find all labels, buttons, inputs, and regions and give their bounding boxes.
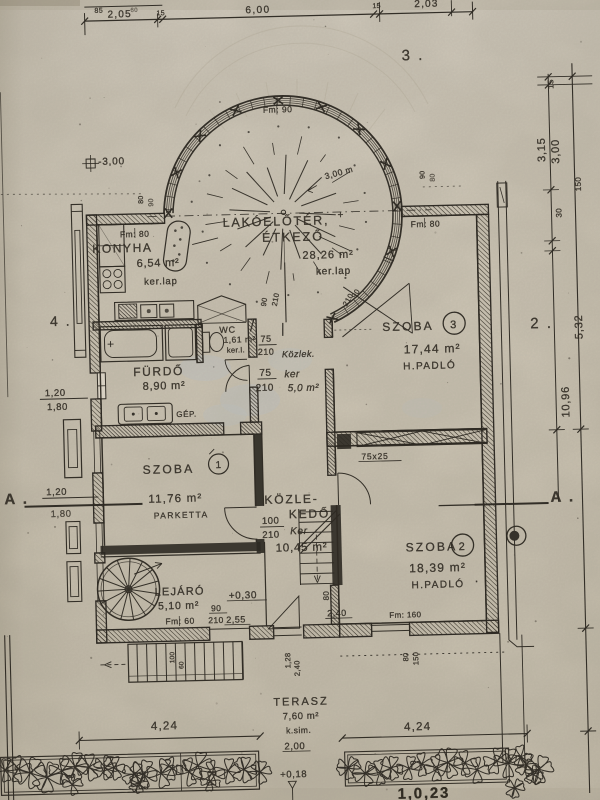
svg-text:-3,00: -3,00 — [98, 156, 125, 168]
svg-text:Fm: 80: Fm: 80 — [411, 219, 441, 230]
svg-text:1,61 m²: 1,61 m² — [223, 334, 256, 345]
svg-text:10,96: 10,96 — [560, 386, 573, 418]
svg-text:FÜRDŐ: FÜRDŐ — [133, 363, 184, 379]
svg-text:Fm: 90: Fm: 90 — [263, 104, 293, 115]
svg-text:2,03: 2,03 — [414, 0, 439, 10]
svg-text:Fm: 160: Fm: 160 — [389, 610, 422, 620]
svg-text:H.PADLÓ: H.PADLÓ — [403, 358, 456, 372]
svg-text:85: 85 — [94, 8, 103, 15]
svg-text:11,76 m²: 11,76 m² — [148, 492, 202, 505]
svg-text:H.PADLÓ: H.PADLÓ — [411, 577, 464, 591]
svg-text:PARKETTA: PARKETTA — [154, 509, 209, 520]
svg-text:1,20: 1,20 — [46, 487, 67, 499]
svg-text:+0,18: +0,18 — [280, 769, 307, 781]
svg-text:210: 210 — [256, 383, 274, 394]
svg-text:2,55: 2,55 — [226, 614, 246, 624]
svg-text:5,10 m²: 5,10 m² — [158, 600, 199, 613]
svg-text:150: 150 — [574, 177, 583, 192]
svg-text:6,00: 6,00 — [245, 5, 270, 17]
svg-text:80: 80 — [401, 652, 410, 661]
svg-text:15: 15 — [546, 79, 555, 89]
svg-text:·: · — [474, 574, 478, 588]
svg-text:28,26 m²: 28,26 m² — [302, 249, 354, 262]
svg-text:SZOBA: SZOBA — [142, 462, 194, 477]
svg-text:4,24: 4,24 — [151, 720, 178, 733]
svg-text:2,05: 2,05 — [107, 9, 132, 21]
svg-text:WC: WC — [219, 325, 236, 335]
svg-text:GÉP.: GÉP. — [176, 410, 197, 419]
svg-text:1,80: 1,80 — [51, 509, 72, 521]
svg-text:4 .: 4 . — [50, 313, 72, 330]
svg-text:1,20: 1,20 — [45, 388, 66, 400]
svg-text:KONYHA: KONYHA — [92, 241, 153, 256]
svg-text:LAKÓELŐTÉR,: LAKÓELŐTÉR, — [222, 212, 329, 230]
svg-text:TERASZ: TERASZ — [273, 695, 329, 708]
svg-text:90: 90 — [148, 198, 155, 207]
svg-text:A .: A . — [4, 491, 29, 509]
svg-text:5,0 m²: 5,0 m² — [288, 383, 320, 395]
svg-text:80: 80 — [322, 591, 331, 601]
svg-text:7,60 m²: 7,60 m² — [283, 711, 320, 723]
svg-text:ÉTKEZŐ: ÉTKEZŐ — [262, 228, 324, 245]
svg-text:1,28: 1,28 — [283, 652, 292, 668]
svg-text:210: 210 — [262, 530, 280, 541]
svg-text:4,24: 4,24 — [404, 721, 431, 734]
svg-text:Fm: 60: Fm: 60 — [165, 616, 195, 627]
svg-text:90: 90 — [419, 170, 426, 179]
svg-text:SZOBA: SZOBA — [405, 539, 457, 554]
svg-text:1,0,23: 1,0,23 — [397, 784, 450, 800]
svg-text:80: 80 — [430, 173, 437, 182]
svg-text:3,15: 3,15 — [536, 137, 549, 162]
svg-text:15: 15 — [372, 3, 381, 10]
svg-text:k.sim.: k.sim. — [286, 725, 311, 736]
svg-text:90: 90 — [211, 603, 222, 613]
svg-text:3,00: 3,00 — [550, 139, 563, 164]
svg-text:2: 2 — [458, 541, 464, 553]
svg-text:17,44 m²: 17,44 m² — [404, 341, 461, 356]
svg-text:100: 100 — [169, 651, 176, 663]
svg-text:+: + — [337, 210, 343, 221]
svg-text:6,54 m²: 6,54 m² — [136, 257, 179, 270]
svg-text:30: 30 — [554, 208, 563, 218]
svg-text:SZOBA: SZOBA — [382, 319, 434, 334]
svg-text:KEDŐ: KEDŐ — [289, 505, 331, 521]
svg-text:150: 150 — [411, 652, 420, 666]
svg-text:210: 210 — [208, 615, 224, 625]
svg-text:ker.lap: ker.lap — [144, 276, 178, 288]
svg-text:2 .: 2 . — [530, 315, 553, 333]
svg-text:ker: ker — [284, 369, 300, 380]
svg-text:1: 1 — [215, 460, 221, 471]
svg-text:Közlek.: Közlek. — [282, 349, 315, 360]
svg-text:18,39 m²: 18,39 m² — [409, 560, 466, 575]
svg-text:75: 75 — [260, 334, 271, 344]
svg-text:ker.lap: ker.lap — [316, 266, 351, 278]
svg-text:60: 60 — [178, 661, 185, 669]
svg-text:LEJÁRÓ: LEJÁRÓ — [154, 584, 204, 598]
svg-text:KÖZLE-: KÖZLE- — [264, 492, 318, 507]
svg-text:ker.l.: ker.l. — [227, 345, 245, 354]
svg-text:3 .: 3 . — [401, 47, 424, 65]
svg-text:75x25: 75x25 — [361, 451, 388, 462]
svg-text:75: 75 — [259, 368, 271, 379]
svg-text:8,90 m²: 8,90 m² — [142, 380, 185, 393]
svg-text:5,32: 5,32 — [573, 314, 586, 339]
svg-text:2,40: 2,40 — [292, 660, 301, 676]
svg-text:1,80: 1,80 — [47, 402, 68, 414]
svg-text:15: 15 — [156, 10, 165, 17]
svg-text:100: 100 — [262, 516, 280, 527]
svg-text:3: 3 — [450, 319, 456, 331]
svg-text:2,40: 2,40 — [327, 608, 347, 618]
svg-text:210: 210 — [258, 347, 275, 357]
svg-text:90: 90 — [259, 297, 269, 307]
svg-text:80: 80 — [138, 195, 145, 204]
svg-text:A .: A . — [550, 488, 575, 506]
